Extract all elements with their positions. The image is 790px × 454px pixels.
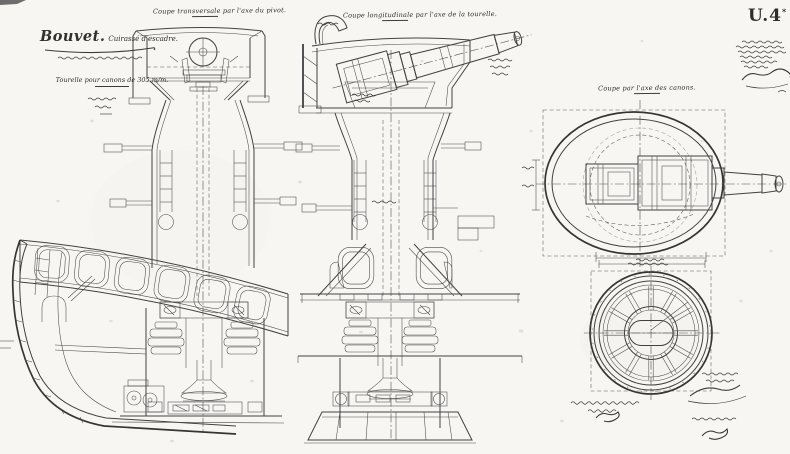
lower-annotations (571, 373, 746, 439)
caption-transverse-section: Coupe transversale par l'axe du pivot. (153, 6, 257, 17)
paper-texture (0, 0, 773, 442)
title-block: Bouvet.Cuirassé d'escadre. (40, 26, 178, 45)
drawing-canvas (0, 0, 790, 454)
sheet-mark-superscript: * (782, 6, 787, 16)
ship-name: Bouvet. (40, 28, 105, 45)
approval-stamp (736, 41, 790, 92)
view-longitudinal-section (296, 14, 536, 443)
caption-longitudinal-section: Coupe longitudinale par l'axe de la tour… (343, 10, 447, 21)
sheet-mark: U.4* (748, 6, 787, 26)
drawing-subtitle: Tourelle pour canons de 305 m/m. (52, 76, 172, 87)
caption-plan-view: Coupe par l'axe des canons. (598, 83, 696, 94)
sheet-mark-number: U.4 (748, 6, 782, 26)
blueprint-sheet: Bouvet.Cuirassé d'escadre. Tourelle pour… (0, 0, 790, 454)
view-turret-plan (522, 100, 788, 268)
ship-type: Cuirassé d'escadre. (108, 35, 178, 43)
dimension-lines (532, 160, 706, 262)
